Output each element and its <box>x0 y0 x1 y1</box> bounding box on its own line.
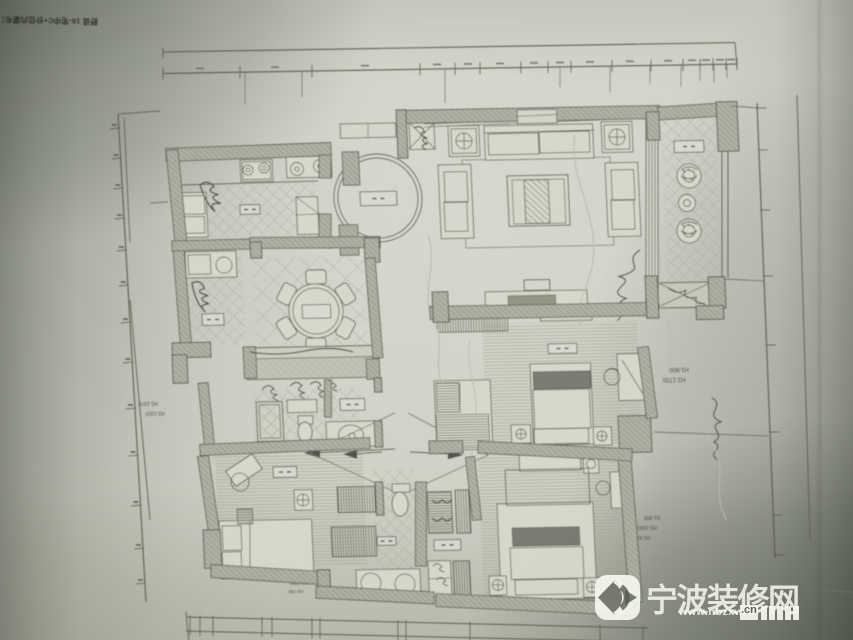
svg-text:H2-1310: H2-1310 <box>145 410 165 416</box>
svg-text:H1-1970: H1-1970 <box>138 400 158 406</box>
svg-text:H2-780: H2-780 <box>288 589 304 594</box>
svg-text:H1-800: H1-800 <box>668 366 689 372</box>
svg-text:H2-1690: H2-1690 <box>637 524 657 530</box>
svg-text:H2-1700: H2-1700 <box>662 376 686 382</box>
svg-text:H1-800: H1-800 <box>644 514 661 520</box>
